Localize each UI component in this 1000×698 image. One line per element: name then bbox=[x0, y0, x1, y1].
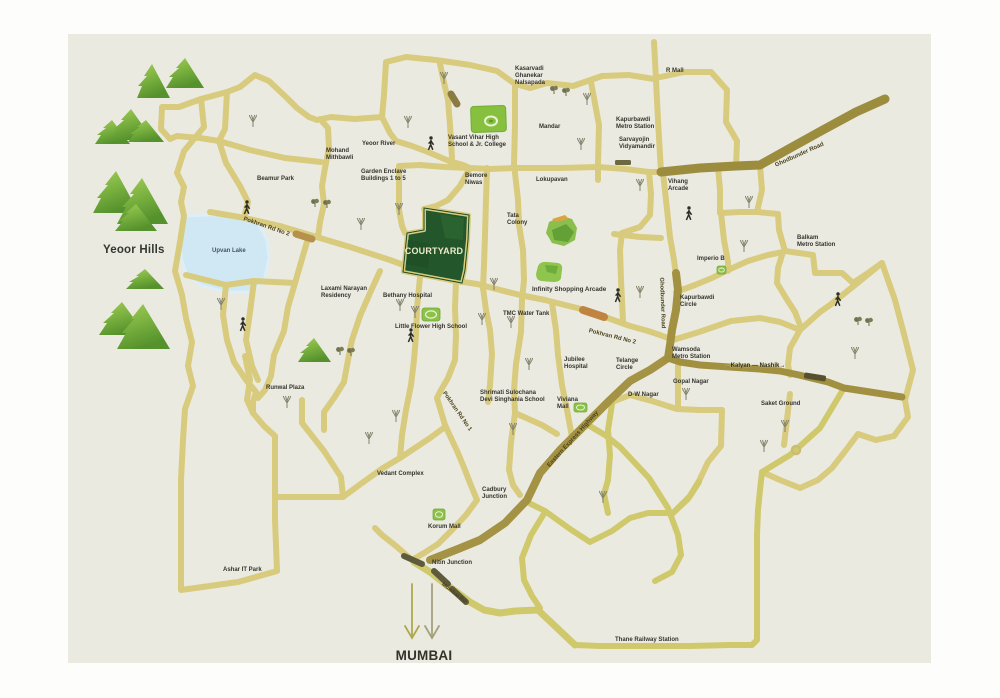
svg-text:Niwas: Niwas bbox=[465, 180, 483, 186]
svg-text:Vedant Complex: Vedant Complex bbox=[377, 471, 424, 477]
svg-text:Imperio B: Imperio B bbox=[697, 256, 725, 262]
svg-text:Residency: Residency bbox=[321, 293, 352, 299]
svg-text:Metro Station: Metro Station bbox=[616, 124, 655, 130]
svg-text:Bemore: Bemore bbox=[465, 173, 488, 179]
svg-text:Metro Station: Metro Station bbox=[797, 242, 836, 248]
svg-text:Viviana: Viviana bbox=[557, 397, 579, 403]
svg-text:Arcade: Arcade bbox=[668, 186, 689, 192]
svg-text:Colony: Colony bbox=[507, 220, 528, 226]
svg-text:Runwal Plaza: Runwal Plaza bbox=[266, 385, 305, 391]
svg-text:Little Flower High School: Little Flower High School bbox=[395, 324, 467, 330]
svg-text:Junction: Junction bbox=[482, 494, 507, 500]
svg-text:Beamur Park: Beamur Park bbox=[257, 176, 295, 182]
svg-text:Infinity Shopping Arcade: Infinity Shopping Arcade bbox=[532, 286, 607, 293]
svg-text:Wamsoda: Wamsoda bbox=[672, 347, 701, 353]
svg-text:Mithbawli: Mithbawli bbox=[326, 155, 354, 161]
svg-text:Shrimati Sulochana: Shrimati Sulochana bbox=[480, 390, 537, 396]
svg-text:Nitin Junction: Nitin Junction bbox=[432, 560, 472, 566]
svg-text:Mandar: Mandar bbox=[539, 124, 561, 130]
svg-text:Yeoor Hills: Yeoor Hills bbox=[103, 244, 165, 256]
svg-text:Laxami Narayan: Laxami Narayan bbox=[321, 286, 367, 292]
svg-text:MUMBAI: MUMBAI bbox=[396, 648, 453, 663]
svg-text:Cadbury: Cadbury bbox=[482, 487, 507, 493]
svg-text:Metro Station: Metro Station bbox=[672, 354, 711, 360]
svg-text:Vihang: Vihang bbox=[668, 179, 688, 185]
svg-text:Ashar IT Park: Ashar IT Park bbox=[223, 567, 262, 573]
svg-text:Sarvayojin: Sarvayojin bbox=[619, 137, 650, 143]
svg-text:Garden Enclave: Garden Enclave bbox=[361, 169, 407, 175]
svg-text:Circle: Circle bbox=[680, 302, 697, 308]
svg-text:School & Jr. College: School & Jr. College bbox=[448, 142, 507, 148]
svg-text:←Kalyan — Nashik→: ←Kalyan — Nashik→ bbox=[725, 363, 786, 369]
svg-text:Upvan Lake: Upvan Lake bbox=[212, 248, 246, 254]
svg-text:Balkam: Balkam bbox=[797, 235, 818, 241]
svg-text:Nalsapada: Nalsapada bbox=[515, 80, 546, 86]
svg-text:Vasant Vihar High: Vasant Vihar High bbox=[448, 135, 499, 141]
svg-text:Bethany Hospital: Bethany Hospital bbox=[383, 293, 432, 299]
svg-text:Saket Ground: Saket Ground bbox=[761, 401, 801, 407]
svg-text:Kapurbawdi: Kapurbawdi bbox=[680, 295, 715, 301]
svg-text:Thane Railway Station: Thane Railway Station bbox=[615, 637, 679, 643]
svg-text:Telange: Telange bbox=[616, 358, 639, 364]
svg-text:D-W Nagar: D-W Nagar bbox=[628, 392, 659, 398]
svg-text:Buildings 1 to 5: Buildings 1 to 5 bbox=[361, 176, 406, 182]
svg-text:Devi Singhania School: Devi Singhania School bbox=[480, 397, 545, 403]
svg-text:Kapurbawdi: Kapurbawdi bbox=[616, 117, 651, 123]
svg-text:Ghanekar: Ghanekar bbox=[515, 73, 543, 79]
svg-text:Tata: Tata bbox=[507, 213, 520, 219]
svg-text:Yeoor River: Yeoor River bbox=[362, 141, 396, 147]
svg-text:Jubilee: Jubilee bbox=[564, 357, 585, 363]
svg-text:Kasarvadi: Kasarvadi bbox=[515, 66, 544, 72]
svg-text:Circle: Circle bbox=[616, 365, 633, 371]
svg-text:Mohand: Mohand bbox=[326, 148, 349, 154]
svg-text:Mall: Mall bbox=[557, 404, 569, 410]
svg-text:COURTYARD: COURTYARD bbox=[405, 246, 464, 256]
svg-text:Lokupavan: Lokupavan bbox=[536, 177, 568, 183]
svg-text:R Mall: R Mall bbox=[666, 68, 684, 74]
svg-text:Korum Mall: Korum Mall bbox=[428, 524, 461, 530]
svg-text:Hospital: Hospital bbox=[564, 364, 588, 370]
svg-text:Vidyamandir: Vidyamandir bbox=[619, 144, 656, 150]
svg-text:TMC Water Tank: TMC Water Tank bbox=[503, 311, 550, 317]
svg-text:Gopal Nagar: Gopal Nagar bbox=[673, 379, 709, 385]
